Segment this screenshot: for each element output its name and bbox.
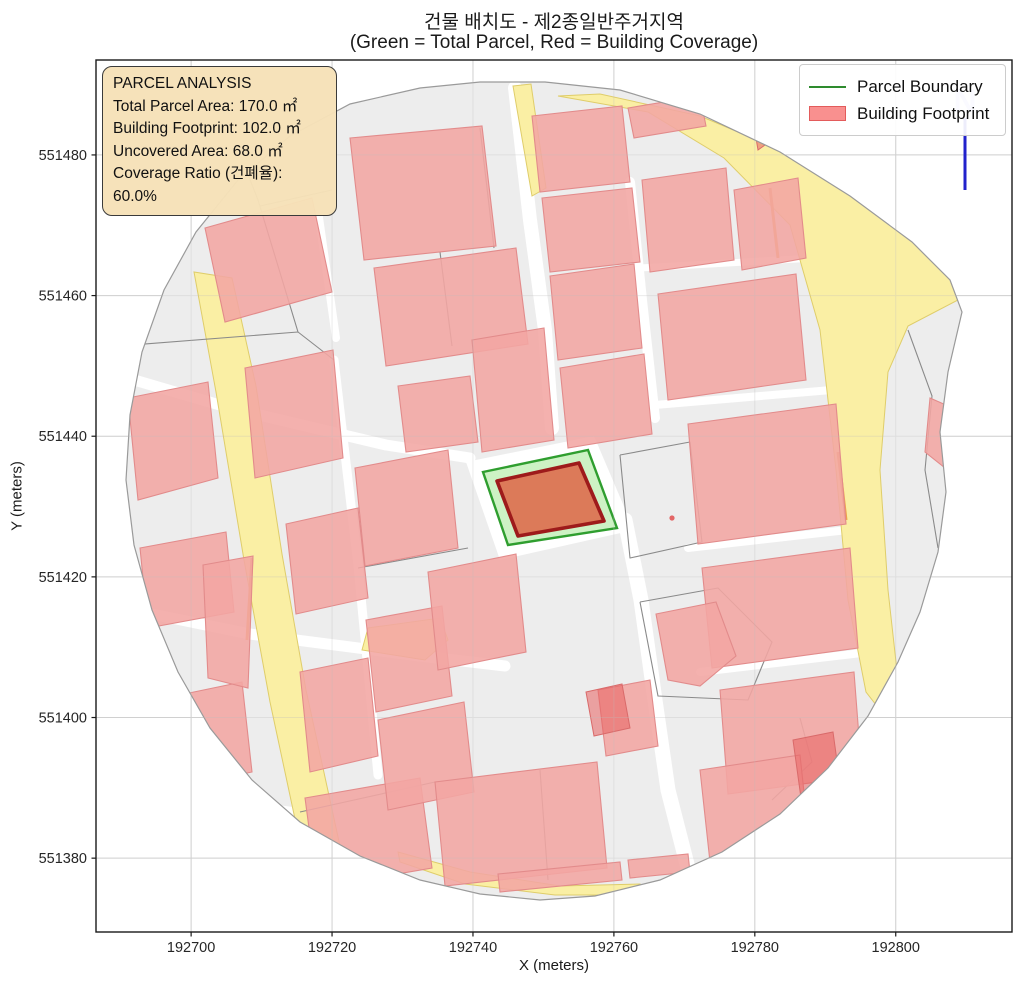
y-tick-label: 551420 [39,570,87,586]
x-tick-label: 192780 [731,940,779,956]
x-tick-label: 192760 [590,940,638,956]
building [428,554,526,670]
parcel-analysis-total-area: Total Parcel Area: 170.0 ㎡ [113,96,326,119]
parcel-analysis-box: PARCEL ANALYSIS Total Parcel Area: 170.0… [102,66,337,216]
legend-label: Building Footprint [857,104,989,124]
x-tick-label: 192720 [308,940,356,956]
building [472,328,554,452]
y-tick-label: 551440 [39,429,87,445]
x-axis-label: X (meters) [96,957,1012,974]
y-tick-label: 551480 [39,148,87,164]
parcel-analysis-coverage-ratio: Coverage Ratio (건폐율): 60.0% [113,163,326,208]
building [203,556,253,688]
red-dot-marker [669,515,674,520]
building [165,682,252,788]
building [658,274,806,400]
parcel-analysis-heading: PARCEL ANALYSIS [113,73,326,96]
x-tick-label: 192740 [449,940,497,956]
legend-item-parcel-boundary: Parcel Boundary [809,73,996,100]
building-footprint-patch-swatch [809,106,846,121]
building [712,86,758,122]
legend: Parcel Boundary Building Footprint [799,64,1006,136]
building-overlap [586,684,630,736]
x-tick-label: 192700 [167,940,215,956]
parcel-analysis-uncovered-area: Uncovered Area: 68.0 ㎡ [113,141,326,164]
y-axis-label: Y (meters) [9,461,26,531]
y-tick-label: 551400 [39,711,87,727]
building [245,350,343,478]
building [734,178,806,270]
building [550,264,642,360]
y-tick-label: 551460 [39,289,87,305]
building [350,126,496,260]
building [642,168,734,272]
building [532,106,630,192]
building [286,508,368,614]
building [355,450,458,566]
x-tick-label: 192800 [872,940,920,956]
y-tick-label: 551380 [39,851,87,867]
parcel-boundary-line-swatch [809,86,846,88]
building-overlap [793,732,841,798]
figure-canvas: 건물 배치도 - 제2종일반주거지역 (Green = Total Parcel… [0,0,1021,990]
building [688,404,846,544]
building [300,658,378,772]
building [398,376,478,452]
building [542,188,640,272]
parcel-analysis-building-footprint: Building Footprint: 102.0 ㎡ [113,118,326,141]
legend-item-building-footprint: Building Footprint [809,100,996,127]
building [560,354,652,448]
building [858,732,898,796]
legend-label: Parcel Boundary [857,77,983,97]
